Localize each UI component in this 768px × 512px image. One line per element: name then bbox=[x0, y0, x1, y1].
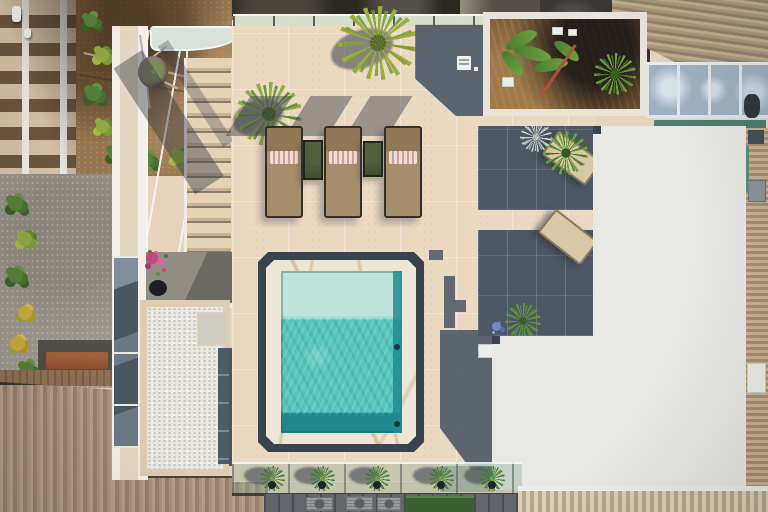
planter-shrub-yellow bbox=[18, 306, 32, 320]
lounger-towel bbox=[389, 151, 417, 164]
fan-palm bbox=[594, 53, 636, 95]
balustrade-seam bbox=[114, 404, 138, 406]
shrub bbox=[95, 48, 109, 62]
aerial-photo-rooftop-terrace bbox=[0, 0, 768, 512]
palm-plant bbox=[505, 303, 541, 339]
planter-shrub bbox=[18, 232, 32, 246]
grey-mat bbox=[197, 312, 228, 346]
planter-shrub bbox=[8, 268, 23, 283]
post-shadow bbox=[429, 250, 443, 260]
roof-shadow bbox=[0, 0, 78, 188]
pale-agave bbox=[520, 122, 552, 152]
post-shadow bbox=[444, 276, 455, 328]
bougainvillea bbox=[146, 252, 158, 264]
roof-pipe bbox=[12, 6, 21, 22]
rooftop-ac-unit bbox=[306, 497, 333, 511]
corrugated-roof-southeast bbox=[518, 486, 768, 512]
sun-lounger bbox=[324, 126, 362, 218]
side-table bbox=[363, 141, 383, 177]
irrigation-box bbox=[568, 29, 577, 36]
roof-pipe bbox=[24, 28, 31, 38]
corrugated-roof-southwest bbox=[0, 382, 118, 512]
glass-balustrade-west bbox=[114, 256, 138, 448]
pool-light bbox=[394, 421, 400, 427]
planter-shrub bbox=[8, 196, 23, 211]
pool-rules-sign bbox=[457, 56, 471, 70]
pergola-lower-grid bbox=[492, 336, 746, 490]
swimming-pool bbox=[281, 271, 402, 433]
junction-box bbox=[478, 344, 493, 358]
pergola-bamboo-panel bbox=[492, 336, 500, 344]
pergola-upper-grid bbox=[593, 126, 746, 340]
irrigation-box bbox=[502, 77, 514, 87]
flower-pot bbox=[149, 280, 167, 296]
glass-balustrade-south bbox=[232, 462, 522, 496]
side-table bbox=[303, 140, 323, 180]
rooftop-ac-unit bbox=[377, 497, 401, 511]
pool-side-wall bbox=[393, 271, 402, 433]
sun-lounger bbox=[265, 126, 303, 218]
irrigation-box bbox=[552, 27, 563, 35]
pool-light bbox=[394, 344, 400, 350]
yucca-plant bbox=[338, 6, 418, 80]
tiled-roof-west bbox=[0, 0, 78, 188]
shrub bbox=[86, 86, 101, 101]
shrub bbox=[84, 14, 97, 27]
pool-frame bbox=[258, 252, 424, 452]
shrub bbox=[96, 120, 109, 133]
balustrade-seam bbox=[114, 352, 138, 354]
wall-vent bbox=[748, 130, 764, 144]
satellite-dish bbox=[744, 94, 760, 118]
garden-bench bbox=[46, 352, 108, 369]
wall-mounted-unit bbox=[748, 180, 766, 202]
water-ripples bbox=[281, 318, 402, 415]
rooftop-ac-unit bbox=[346, 496, 373, 511]
tropical-planter-bed bbox=[483, 12, 647, 116]
awning-strip bbox=[406, 496, 474, 512]
pergola-bamboo-panel bbox=[593, 126, 601, 134]
post-shadow bbox=[455, 300, 466, 312]
planter-shrub-yellow bbox=[10, 336, 25, 351]
wall-mounted-unit bbox=[747, 363, 766, 393]
agapanthus bbox=[492, 322, 501, 331]
sun-lounger bbox=[384, 126, 422, 218]
lounger-towel bbox=[329, 151, 357, 164]
lounger-towel bbox=[270, 151, 298, 164]
drain-pipe bbox=[746, 146, 749, 192]
